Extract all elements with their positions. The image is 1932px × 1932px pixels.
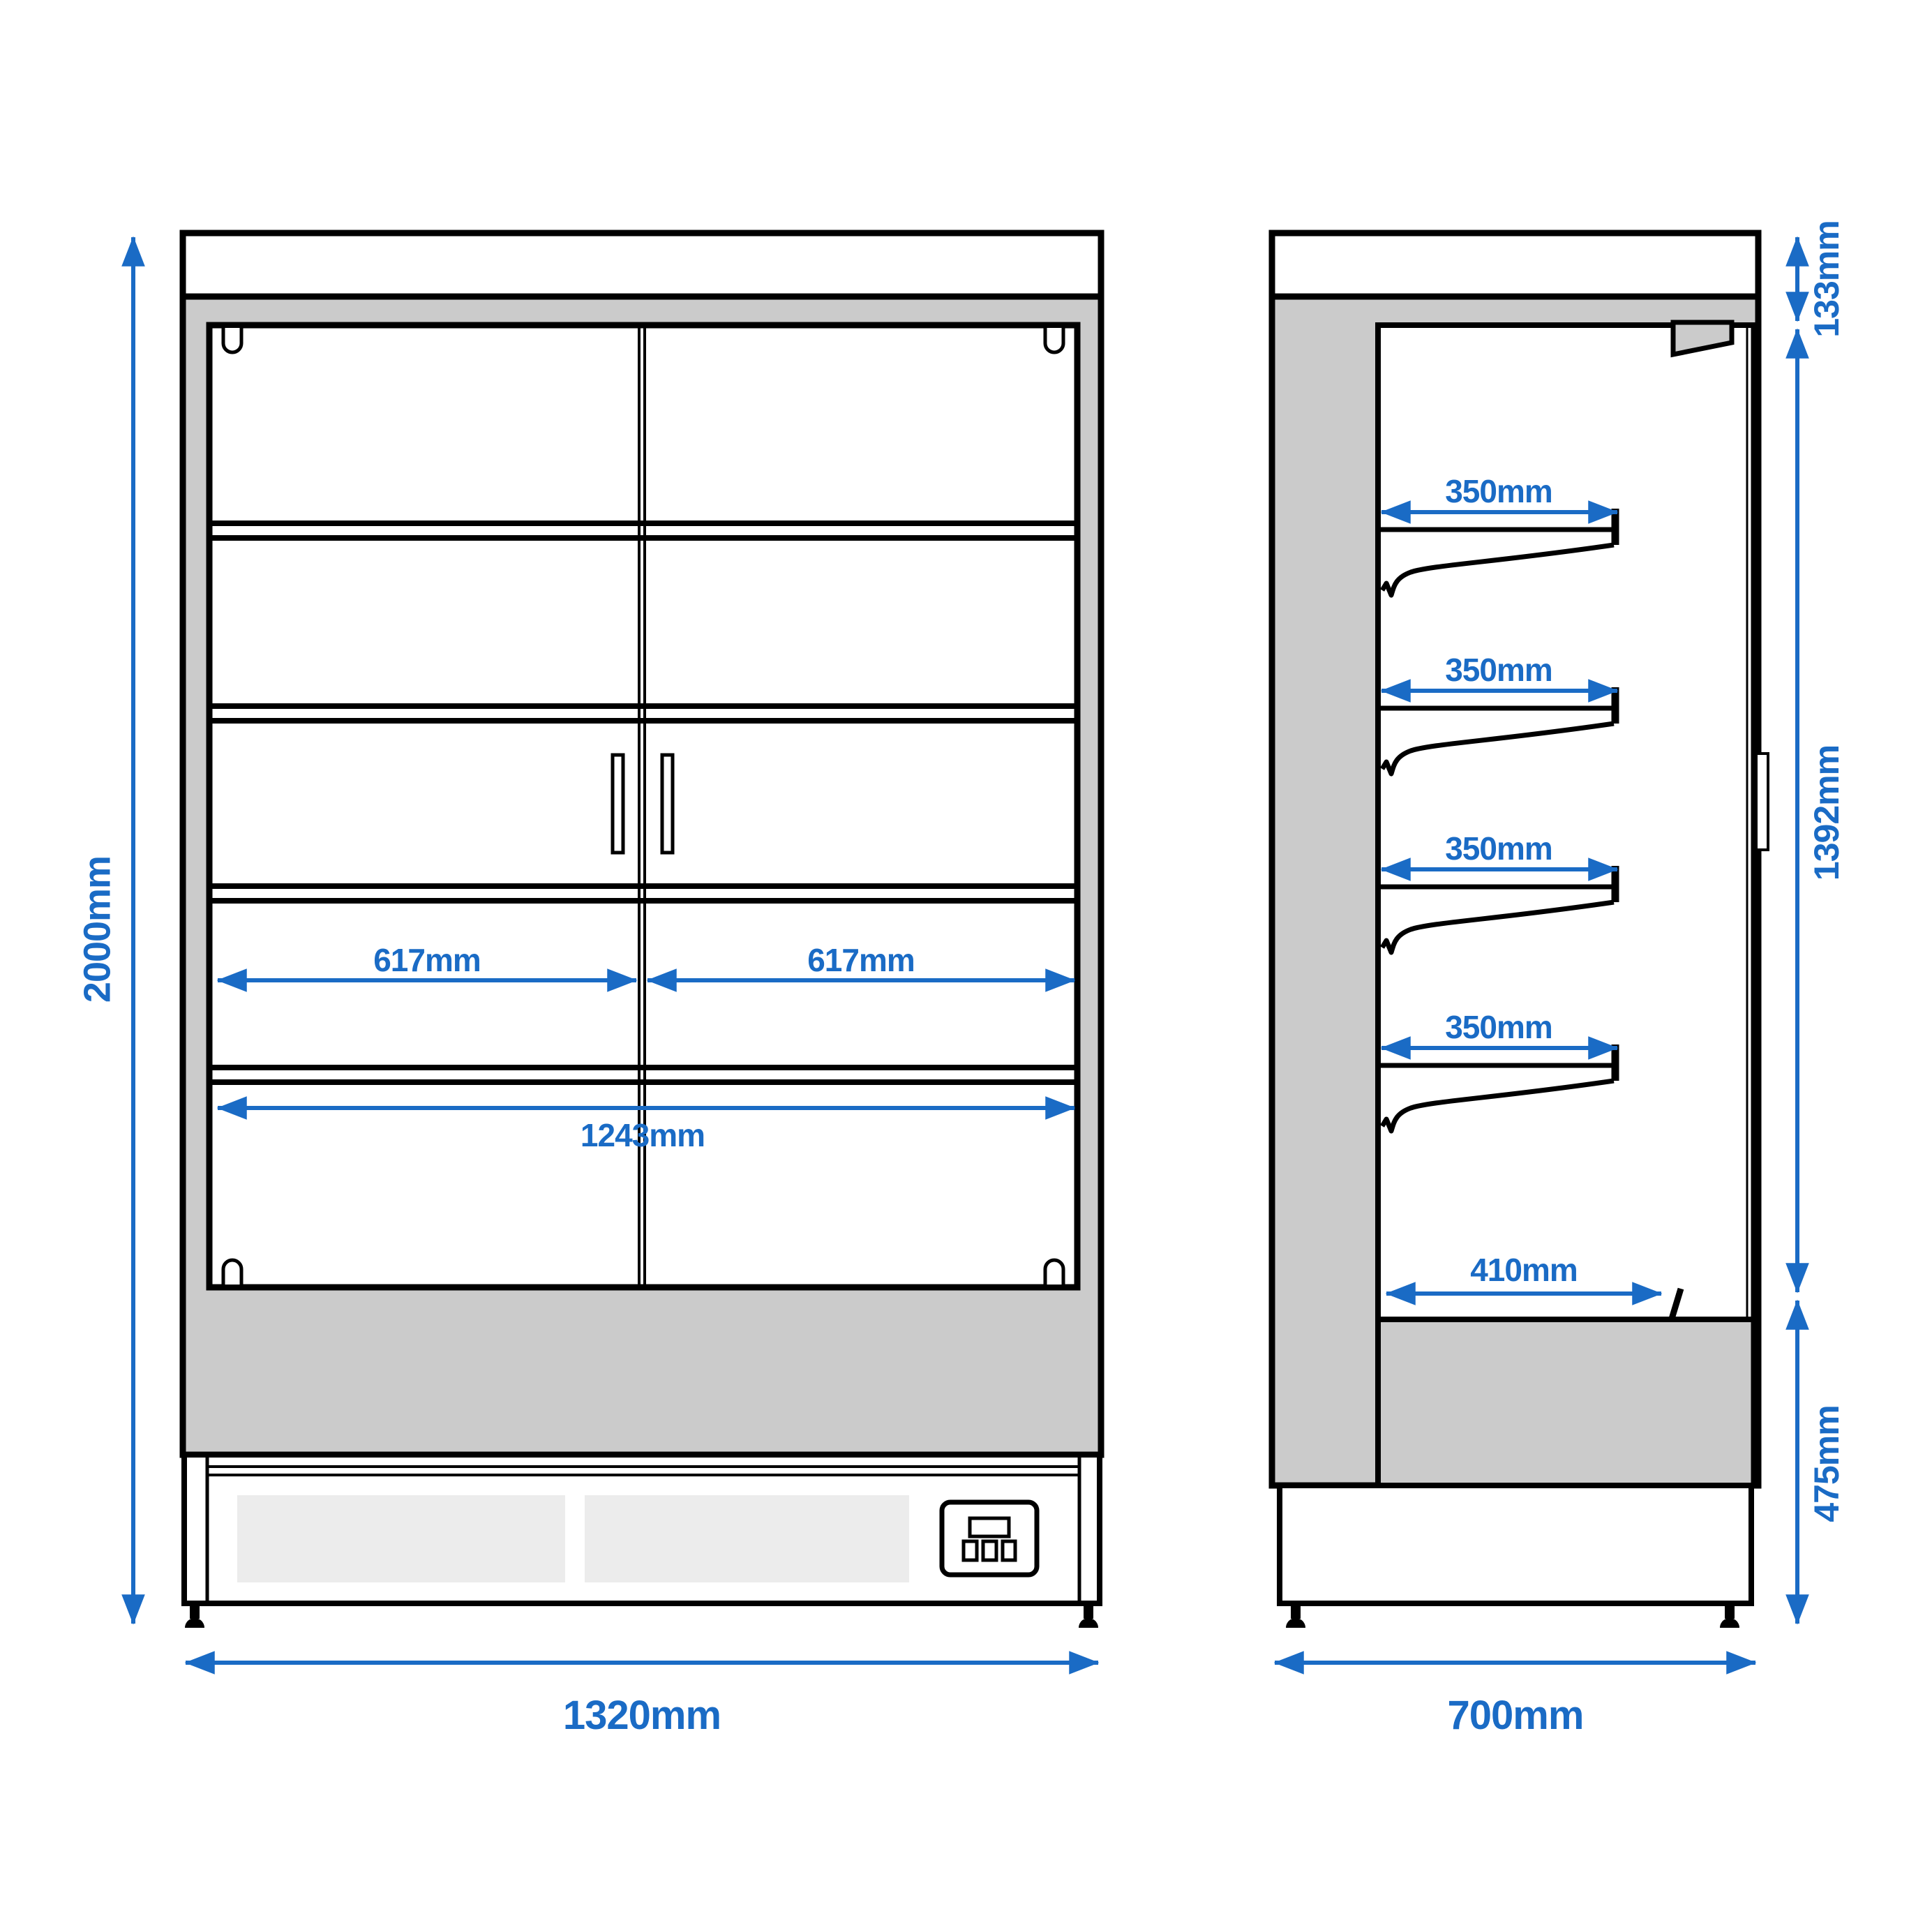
foot-pad [1286,1618,1305,1628]
bottom-shelf-depth-label: 410mm [1470,1252,1578,1288]
depth-dimension-label: 700mm [1448,1693,1584,1738]
side-base-housing [1280,1485,1751,1603]
side-canopy-panel [1272,233,1758,297]
top-left-hinge [223,328,241,352]
left-door-handle [613,755,623,853]
top-right-hinge [1045,328,1063,352]
foot-stem [1725,1603,1735,1619]
inner-width-label: 1243mm [581,1117,705,1153]
shelf-depth-label-1: 350mm [1445,473,1552,509]
side-interior-opening [1378,325,1755,1319]
height-dimension-label: 2000mm [76,856,118,1003]
side-door-handle [1756,754,1768,850]
shelf-depth-label-4: 350mm [1445,1009,1552,1045]
shelf-depth-label-2: 350mm [1445,652,1552,688]
foot-pad [185,1618,204,1628]
front-canopy-panel [183,233,1101,297]
side-bottom-duct [1378,1319,1755,1485]
controller-display [970,1518,1009,1536]
left-door-width-label: 617mm [373,942,481,978]
vent-grille-right [585,1495,909,1582]
foot-pad [1079,1618,1098,1628]
foot-pad [1720,1618,1739,1628]
vent-grille-left [237,1495,565,1582]
technical-drawing-canvas: 2000mm 1320mm 617mm 617mm 1243mm [0,0,1932,1932]
foot-stem [190,1603,200,1619]
foot-stem [1084,1603,1093,1619]
foot-stem [1291,1603,1301,1619]
display-opening-height-label: 1392mm [1807,745,1846,881]
bottom-left-hinge [223,1260,241,1285]
bottom-right-hinge [1045,1260,1063,1285]
front-view: 2000mm 1320mm 617mm 617mm 1243mm [76,233,1101,1738]
right-door-handle [662,755,673,853]
side-feet [1286,1603,1739,1628]
base-height-label: 475mm [1807,1405,1846,1522]
right-door-width-label: 617mm [807,942,915,978]
canopy-height-label: 133mm [1807,220,1846,337]
width-dimension-label: 1320mm [563,1693,721,1738]
controller-button [964,1541,977,1560]
front-feet [185,1603,1098,1628]
controller-housing [942,1502,1037,1575]
shelf-depth-label-3: 350mm [1445,830,1552,867]
side-view: 350mm 350mm 350mm 350mm 410mm 700mm 133m… [1272,220,1846,1738]
temperature-controller [942,1502,1037,1575]
controller-button [1003,1541,1015,1560]
controller-button [983,1541,996,1560]
